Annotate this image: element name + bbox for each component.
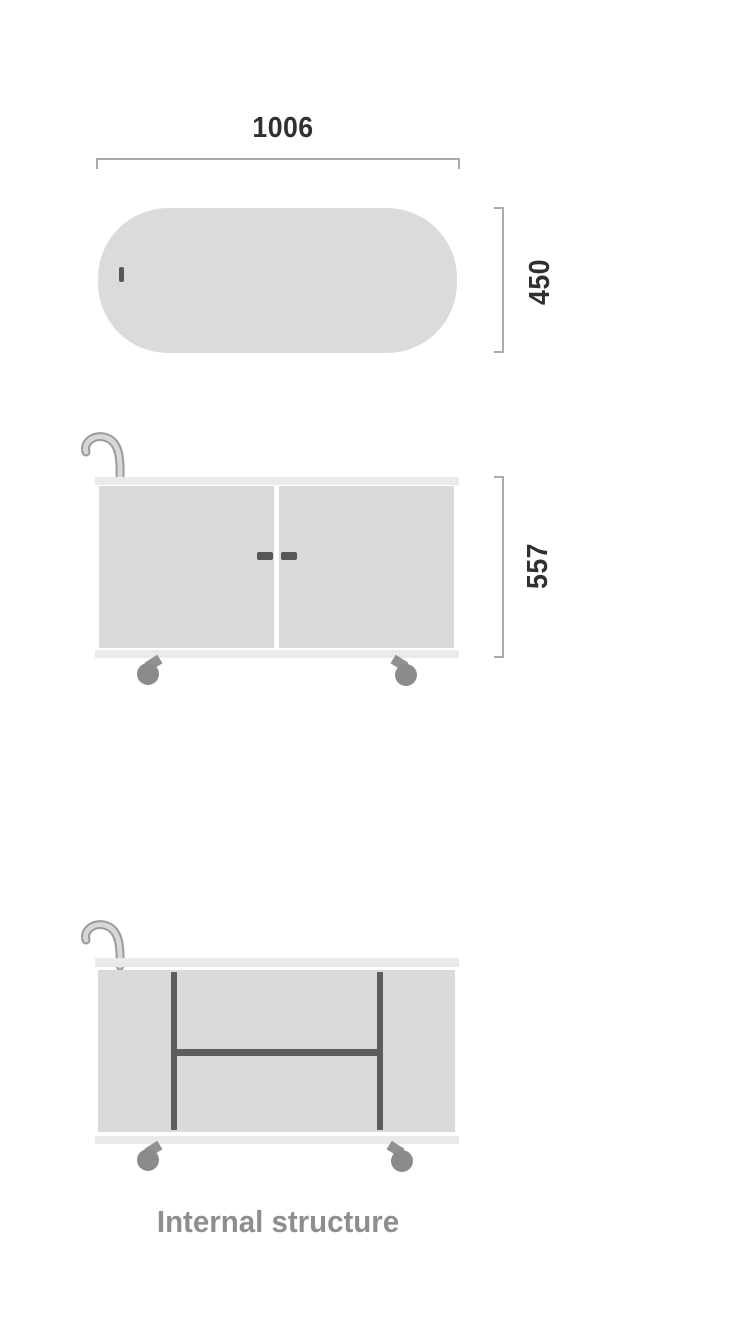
internal-body-panel	[98, 970, 455, 1132]
shelf-divider	[174, 1049, 380, 1056]
dimension-drawing-canvas: 1006 450 557	[0, 0, 744, 1340]
top-panel-strip	[95, 477, 459, 485]
left-door	[99, 486, 274, 648]
trolley-handle-icon	[80, 432, 130, 482]
internal-view: Internal structure	[0, 908, 744, 1268]
depth-dim-bracket	[494, 207, 504, 353]
front-view: 557	[0, 420, 744, 720]
width-dim-label: 1006	[209, 113, 356, 143]
top-panel-strip	[95, 958, 459, 967]
width-dim-bracket	[96, 158, 460, 169]
door-handle-right	[281, 552, 297, 560]
top-view: 1006 450	[0, 0, 744, 420]
base-strip	[95, 1136, 459, 1144]
caster-wheel	[391, 1150, 413, 1172]
base-strip	[95, 650, 459, 658]
internal-caption: Internal structure	[126, 1205, 430, 1239]
height-dim-label: 557	[523, 534, 553, 598]
depth-dim-label: 450	[525, 250, 555, 314]
caster-wheel	[395, 664, 417, 686]
caster-wheel	[137, 663, 159, 685]
handle-top-mark	[119, 267, 124, 282]
caster-wheel	[137, 1149, 159, 1171]
door-area	[98, 486, 455, 648]
height-dim-bracket	[494, 476, 504, 658]
tabletop-shape	[98, 208, 457, 353]
door-handle-left	[257, 552, 273, 560]
right-door	[279, 486, 454, 648]
